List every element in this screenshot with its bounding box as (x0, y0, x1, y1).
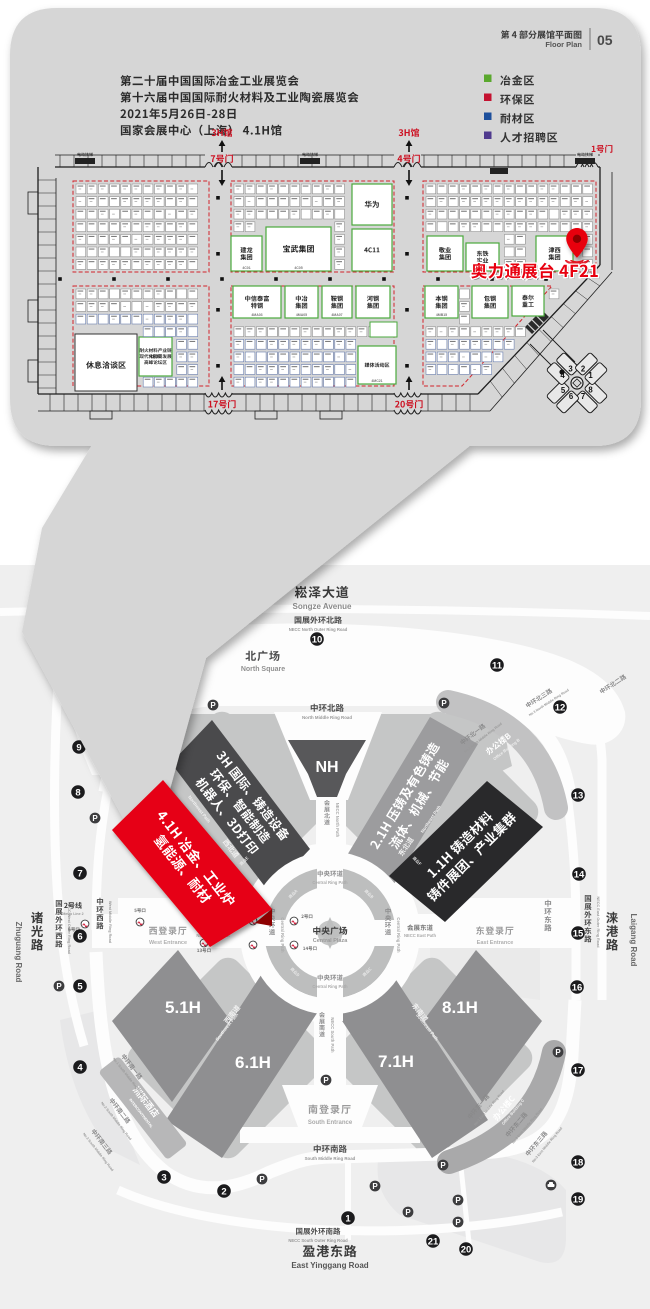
svg-text:Central Ring Path: Central Ring Path (396, 917, 401, 953)
svg-text:13: 13 (573, 790, 584, 801)
svg-text:Central Plaza: Central Plaza (313, 938, 348, 944)
svg-text:Central Ring Path: Central Ring Path (312, 984, 348, 989)
svg-text:4: 4 (77, 1062, 83, 1073)
svg-text:1: 1 (345, 1213, 351, 1224)
svg-text:6: 6 (569, 392, 574, 401)
svg-text:South Entrance: South Entrance (308, 1120, 353, 1126)
svg-text:4MA07: 4MA07 (331, 313, 342, 317)
svg-text:16: 16 (572, 982, 583, 993)
svg-text:10: 10 (312, 634, 323, 645)
svg-text:6.1H: 6.1H (235, 1053, 271, 1072)
svg-text:P: P (92, 814, 98, 823)
svg-text:P: P (56, 982, 62, 991)
svg-text:P: P (441, 699, 447, 708)
svg-text:4C01: 4C01 (242, 266, 250, 270)
svg-text:NECC East Path: NECC East Path (404, 933, 437, 938)
svg-text:19: 19 (573, 1194, 584, 1205)
svg-text:South Middle Ring Road: South Middle Ring Road (305, 1156, 356, 1161)
svg-text:14: 14 (574, 869, 585, 880)
svg-text:4C05: 4C05 (294, 266, 302, 270)
svg-text:21: 21 (428, 1236, 439, 1247)
svg-text:P: P (372, 1182, 378, 1191)
svg-text:5: 5 (561, 386, 566, 395)
svg-text:1: 1 (588, 371, 593, 380)
svg-text:7: 7 (581, 392, 585, 401)
svg-text:9: 9 (76, 742, 81, 753)
svg-text:8.1H: 8.1H (442, 998, 478, 1017)
svg-text:5.1H: 5.1H (165, 998, 201, 1017)
svg-text:Zhuguang Road: Zhuguang Road (14, 922, 23, 983)
svg-text:West Entrance: West Entrance (149, 940, 187, 946)
svg-text:East Yinggang Road: East Yinggang Road (291, 1261, 368, 1270)
svg-text:6: 6 (77, 931, 82, 942)
svg-text:P: P (440, 1161, 446, 1170)
svg-text:4MA05: 4MA05 (296, 313, 307, 317)
svg-text:Laigang Road: Laigang Road (629, 914, 638, 967)
svg-text:Songze Avenue: Songze Avenue (293, 602, 353, 611)
svg-text:P: P (455, 1218, 461, 1227)
svg-text:7: 7 (77, 868, 82, 879)
svg-text:Metro Line 2: Metro Line 2 (62, 912, 83, 916)
svg-text:20: 20 (461, 1244, 472, 1255)
svg-text:8: 8 (588, 386, 593, 395)
svg-text:5: 5 (77, 981, 83, 992)
svg-text:P: P (555, 1048, 561, 1057)
svg-text:NECC South Outer Ring Road: NECC South Outer Ring Road (288, 1238, 348, 1243)
svg-text:8: 8 (75, 787, 80, 798)
svg-text:2: 2 (581, 365, 586, 374)
svg-text:P: P (323, 1076, 329, 1085)
svg-text:2: 2 (221, 1186, 226, 1197)
svg-text:NECC North Path: NECC North Path (335, 803, 340, 838)
svg-text:05: 05 (597, 32, 613, 48)
svg-text:East Entrance: East Entrance (477, 940, 514, 946)
svg-text:7.1H: 7.1H (378, 1052, 414, 1071)
svg-text:North Square: North Square (241, 666, 285, 673)
svg-text:Floor Plan: Floor Plan (545, 40, 582, 49)
svg-text:3: 3 (161, 1172, 166, 1183)
svg-text:Central Ring Path: Central Ring Path (280, 917, 285, 953)
svg-text:17: 17 (573, 1065, 584, 1076)
svg-text:NECC North Outer Ring Road: NECC North Outer Ring Road (289, 627, 348, 632)
svg-text:P: P (405, 1208, 411, 1217)
svg-text:West Middle Ring Road: West Middle Ring Road (108, 901, 112, 944)
svg-text:15: 15 (573, 928, 584, 939)
svg-text:P: P (259, 1175, 265, 1184)
svg-text:4MC21: 4MC21 (371, 379, 382, 383)
svg-text:Central Ring Path: Central Ring Path (312, 880, 348, 885)
svg-text:12: 12 (555, 702, 566, 713)
svg-text:North Middle Ring Road: North Middle Ring Road (302, 715, 352, 720)
svg-text:18: 18 (573, 1157, 584, 1168)
svg-text:P: P (455, 1196, 461, 1205)
svg-text:NH: NH (315, 759, 338, 776)
svg-text:P: P (210, 701, 216, 710)
svg-text:4MA03: 4MA03 (251, 313, 262, 317)
svg-text:11: 11 (492, 660, 503, 671)
svg-text:NECC East Outer Ring Road: NECC East Outer Ring Road (596, 896, 600, 948)
svg-text:NECC South Path: NECC South Path (330, 1017, 335, 1053)
svg-text:3: 3 (568, 365, 573, 374)
svg-text:4MB15: 4MB15 (436, 313, 447, 317)
